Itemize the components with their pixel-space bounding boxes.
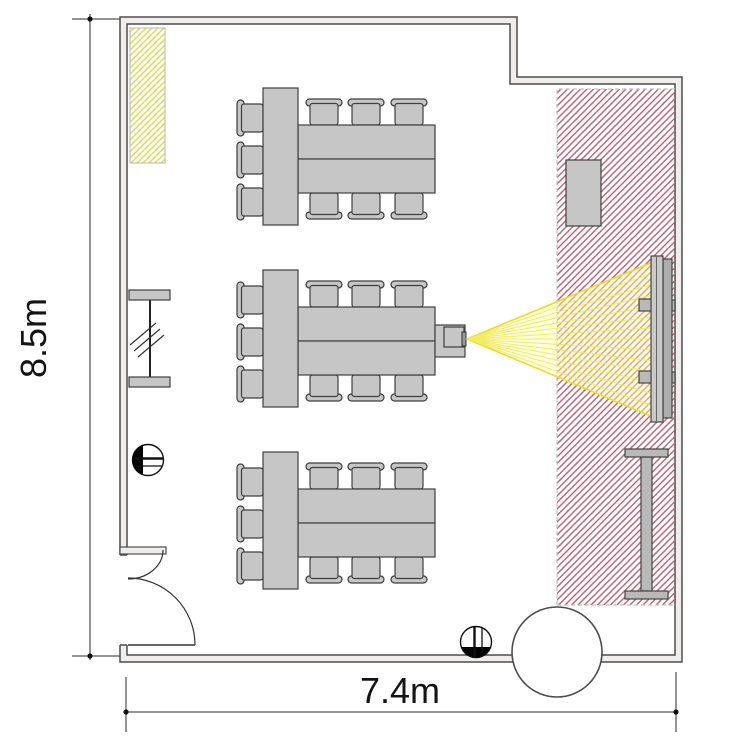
entrance-door [120,547,195,645]
yellow-hatched-zone [130,28,165,163]
wall-marker-icon [461,627,492,658]
door-head-stub [120,547,166,554]
table-group-3 [237,452,435,589]
width-dimension-label: 7.4m [360,670,440,711]
wall-left [120,17,127,555]
floor-plan: 8.5m 7.4m [0,0,750,750]
height-dimension-label: 8.5m [13,298,54,378]
floor-plan-canvas: 8.5m 7.4m [0,0,750,750]
door-swing-arc [128,578,195,645]
wall-step [510,17,517,84]
wall-marker-icon [132,445,163,476]
table-group-2 [237,270,435,407]
wall-top [120,17,517,24]
wall-right [675,77,682,662]
cabinet [566,160,601,226]
dimension-width: 7.4m [123,670,678,732]
radiator [129,290,170,387]
round-table [512,607,602,697]
dimension-height: 8.5m [13,14,120,660]
table-group-1 [237,88,435,225]
wall-left-stub [120,645,127,662]
wall-upper-right [510,77,682,84]
projector [435,325,466,357]
